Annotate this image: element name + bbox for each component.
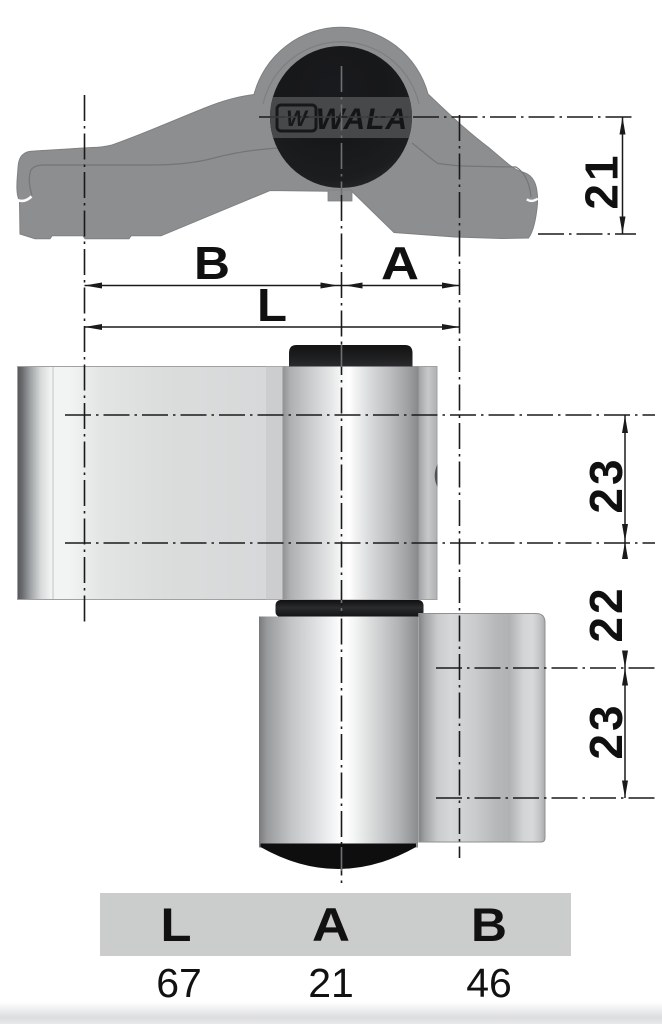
svg-text:L: L [161,898,192,951]
svg-text:B: B [194,237,230,289]
svg-text:A: A [312,898,350,951]
svg-text:A: A [381,237,419,289]
svg-text:22: 22 [580,585,632,642]
svg-text:46: 46 [466,960,512,1006]
svg-text:WALA: WALA [316,103,408,136]
svg-text:B: B [471,898,507,951]
svg-text:W: W [286,106,309,131]
svg-text:21: 21 [576,152,628,209]
svg-text:23: 23 [580,456,632,513]
svg-text:23: 23 [580,702,632,759]
svg-text:67: 67 [156,960,202,1006]
svg-text:L: L [257,279,287,331]
svg-text:21: 21 [308,960,354,1006]
